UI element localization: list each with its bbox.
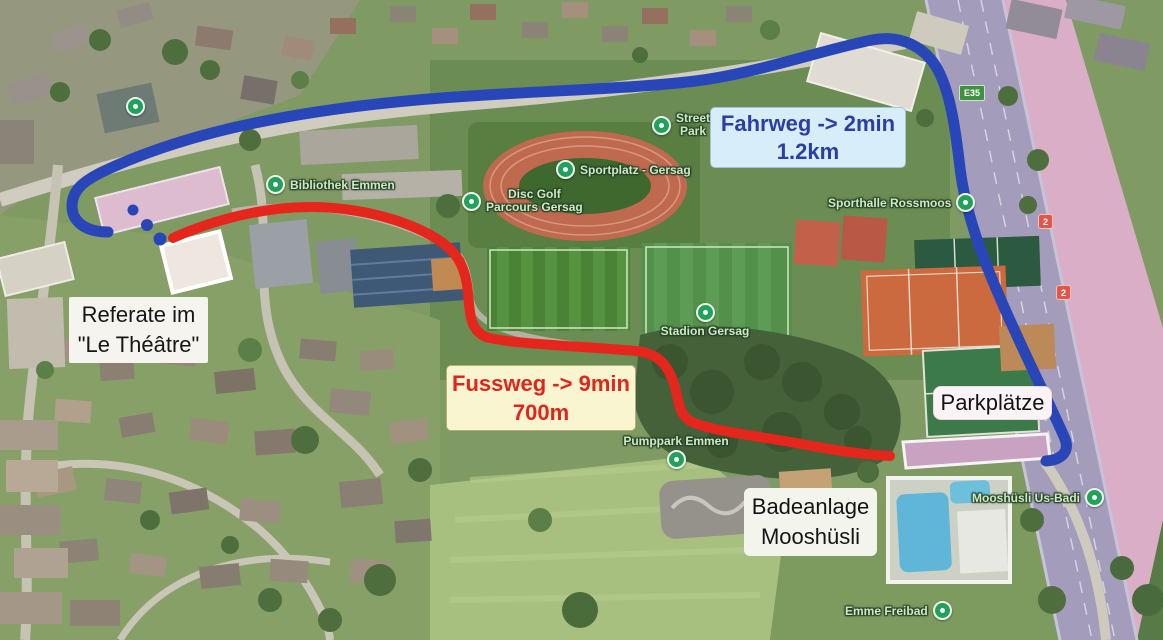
pool-line2: Mooshüsli xyxy=(761,522,860,552)
venue-line1: Referate im xyxy=(82,300,196,330)
route-shield-south: 2 xyxy=(1056,285,1071,300)
walk-route-distance: 700m xyxy=(513,398,569,427)
poi-label: Stadion Gersag xyxy=(661,324,750,338)
route-shield-north: 2 xyxy=(1038,214,1053,229)
map-pin-icon xyxy=(652,116,671,135)
venue-line2: "Le Théâtre" xyxy=(78,330,200,360)
map-pin-icon xyxy=(126,97,145,116)
sports-pin-icon xyxy=(556,160,575,179)
pool-pin-icon xyxy=(933,601,952,620)
poi-pumppark-emmen[interactable]: Pumppark Emmen xyxy=(620,434,732,469)
map-canvas: Bibliothek Emmen Disc Golf Parcours Gers… xyxy=(0,0,1163,640)
poi-stadion-gersag[interactable]: Stadion Gersag xyxy=(655,303,755,338)
drive-route-callout: Fahrweg -> 2min 1.2km xyxy=(710,107,906,168)
pool-pin-icon xyxy=(1085,488,1104,507)
library-pin-icon xyxy=(266,175,285,194)
walk-route-time: Fussweg -> 9min xyxy=(452,369,630,398)
poi-label: Sporthalle Rossmoos xyxy=(828,196,951,210)
poi-label: Mooshüsli Us-Badi xyxy=(972,491,1080,505)
poi-mooshuesli-us-badi[interactable]: Mooshüsli Us-Badi xyxy=(972,488,1104,507)
poi-emme-freibad[interactable]: Emme Freibad xyxy=(845,601,952,620)
running-track xyxy=(468,122,700,248)
poi-unlabeled[interactable] xyxy=(126,97,145,116)
poi-label: Disc Golf Parcours Gersag xyxy=(486,188,583,214)
poi-street-park[interactable]: Street Park xyxy=(652,112,710,138)
motorway-badge-e35: E35 xyxy=(959,85,985,101)
poi-disc-golf[interactable]: Disc Golf Parcours Gersag xyxy=(462,188,583,214)
pool-line1: Badeanlage xyxy=(752,492,869,522)
poi-label: Bibliothek Emmen xyxy=(290,178,395,192)
parking-label: Parkplätze xyxy=(941,390,1045,416)
walk-route-callout: Fussweg -> 9min 700m xyxy=(446,365,636,431)
poi-bibliothek-emmen[interactable]: Bibliothek Emmen xyxy=(266,175,395,194)
poi-label: Sportplatz - Gersag xyxy=(580,163,691,177)
map-pin-icon xyxy=(462,192,481,211)
poi-sporthalle-rossmoos[interactable]: Sporthalle Rossmoos xyxy=(828,193,975,212)
venue-callout: Referate im "Le Théâtre" xyxy=(69,297,208,363)
poi-label: Pumppark Emmen xyxy=(623,434,728,448)
pool-callout: Badeanlage Mooshüsli xyxy=(744,488,877,556)
map-pin-icon xyxy=(667,450,686,469)
poi-label: Street Park xyxy=(676,112,710,138)
sports-pin-icon xyxy=(956,193,975,212)
stadium-pin-icon xyxy=(696,303,715,322)
drive-route-distance: 1.2km xyxy=(777,138,839,166)
drive-route-time: Fahrweg -> 2min xyxy=(721,110,895,138)
poi-label: Emme Freibad xyxy=(845,604,928,618)
parking-callout: Parkplätze xyxy=(933,386,1052,420)
soccer-field-west xyxy=(487,247,630,331)
poi-sportplatz-gersag[interactable]: Sportplatz - Gersag xyxy=(556,160,691,179)
